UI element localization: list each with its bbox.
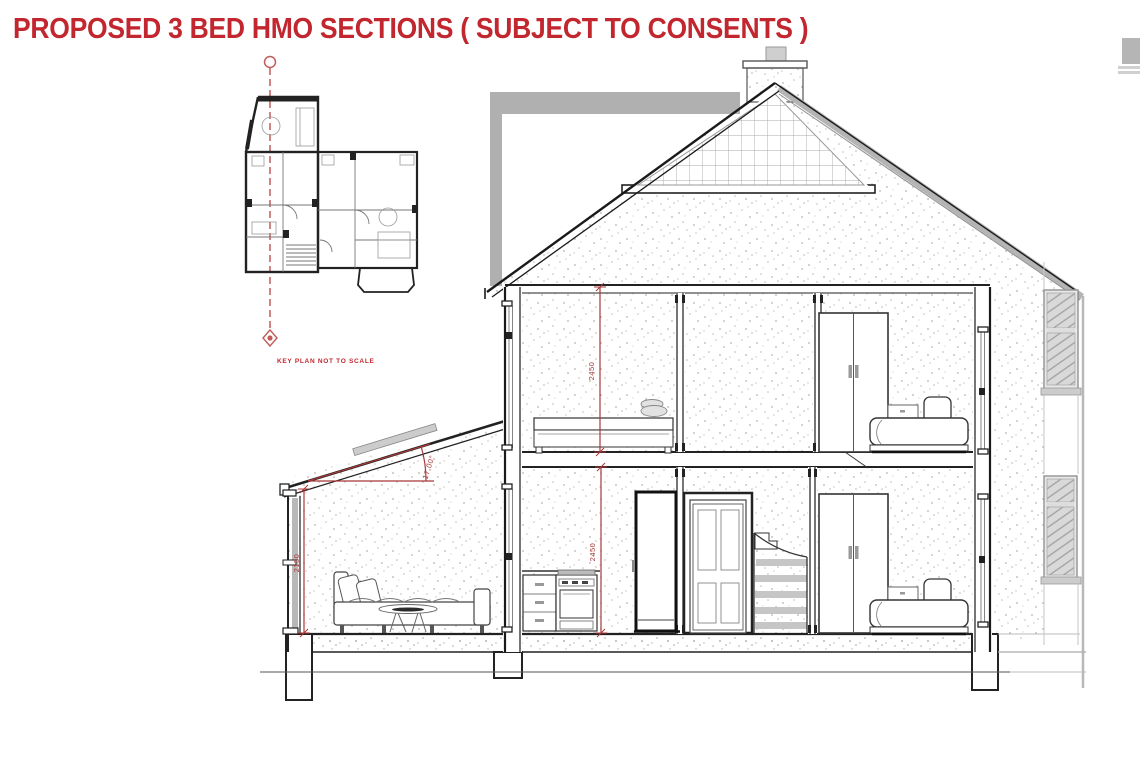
cooker bbox=[556, 570, 597, 631]
glazed-door bbox=[684, 493, 752, 633]
ground-floor-side-window bbox=[1041, 476, 1081, 584]
dimension-text-ground-floor: 2450 bbox=[588, 543, 597, 562]
ground-floor-partition-right bbox=[808, 467, 817, 634]
dimension-text-first-floor: 2450 bbox=[587, 362, 596, 381]
key-plan-furniture bbox=[252, 108, 414, 258]
first-floor-partition-left bbox=[675, 293, 685, 452]
key-plan-outline bbox=[246, 97, 417, 292]
cropped-drawing-artifact bbox=[1118, 38, 1140, 74]
right-external-wall bbox=[973, 287, 992, 652]
section-cut-marker-top-icon bbox=[265, 57, 276, 68]
dimension-text-extension: 2150 bbox=[292, 554, 301, 573]
building-section: 2450 2450 2150 17.00° bbox=[260, 38, 1140, 700]
kitchen-units bbox=[522, 570, 600, 631]
fridge-freezer-unit bbox=[632, 492, 680, 632]
foundations-and-slab bbox=[260, 634, 1086, 700]
key-plan-internal-walls bbox=[246, 152, 417, 272]
left-external-wall bbox=[502, 287, 522, 652]
side-elevation-windows bbox=[1041, 262, 1081, 645]
first-floor-side-window bbox=[1041, 290, 1081, 395]
section-cut-marker-bottom-icon bbox=[263, 330, 277, 346]
page-canvas: PROPOSED 3 BED HMO SECTIONS ( SUBJECT TO… bbox=[0, 0, 1140, 759]
key-plan bbox=[246, 57, 417, 347]
section-drawing: 2450 2450 2150 17.00° bbox=[0, 0, 1140, 759]
